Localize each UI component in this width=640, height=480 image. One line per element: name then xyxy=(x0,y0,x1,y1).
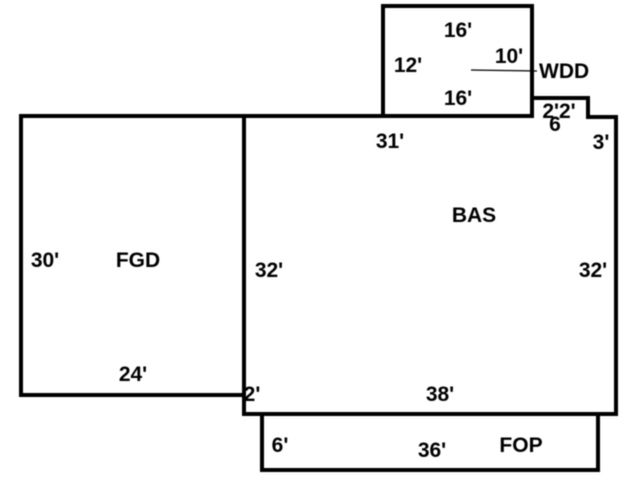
svg-text:6': 6' xyxy=(272,434,289,457)
svg-text:WDD: WDD xyxy=(539,60,589,83)
svg-text:12': 12' xyxy=(394,54,422,77)
svg-text:6: 6 xyxy=(549,113,561,136)
svg-text:36': 36' xyxy=(418,439,446,462)
svg-text:3': 3' xyxy=(593,131,610,154)
svg-text:2': 2' xyxy=(244,383,261,406)
svg-text:BAS: BAS xyxy=(452,204,496,227)
svg-text:16': 16' xyxy=(444,87,472,110)
svg-text:10': 10' xyxy=(495,45,523,68)
svg-text:31': 31' xyxy=(376,130,404,153)
svg-text:32': 32' xyxy=(579,259,607,282)
svg-text:24': 24' xyxy=(119,363,147,386)
svg-text:30': 30' xyxy=(31,249,59,272)
svg-text:38': 38' xyxy=(426,383,454,406)
svg-text:FGD: FGD xyxy=(116,249,160,272)
svg-text:16': 16' xyxy=(444,19,472,42)
svg-text:FOP: FOP xyxy=(499,434,542,457)
svg-text:32': 32' xyxy=(255,259,283,282)
